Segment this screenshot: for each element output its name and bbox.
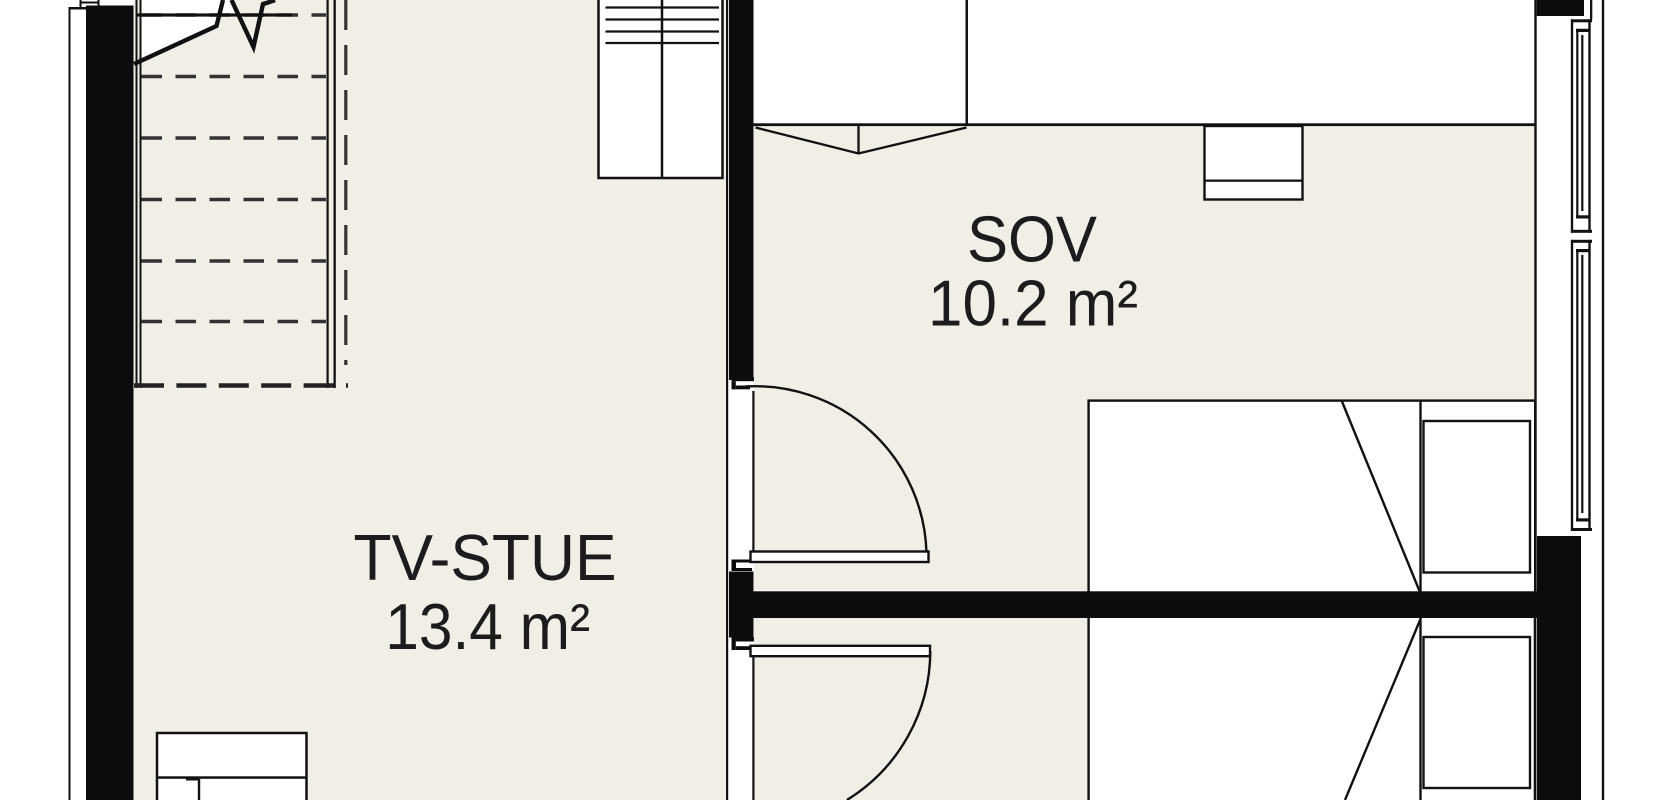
svg-text:10.2 m²: 10.2 m² [928, 268, 1138, 340]
svg-text:SOV: SOV [967, 204, 1097, 276]
svg-text:13.4 m²: 13.4 m² [385, 591, 590, 663]
svg-text:TV-STUE: TV-STUE [354, 522, 617, 594]
